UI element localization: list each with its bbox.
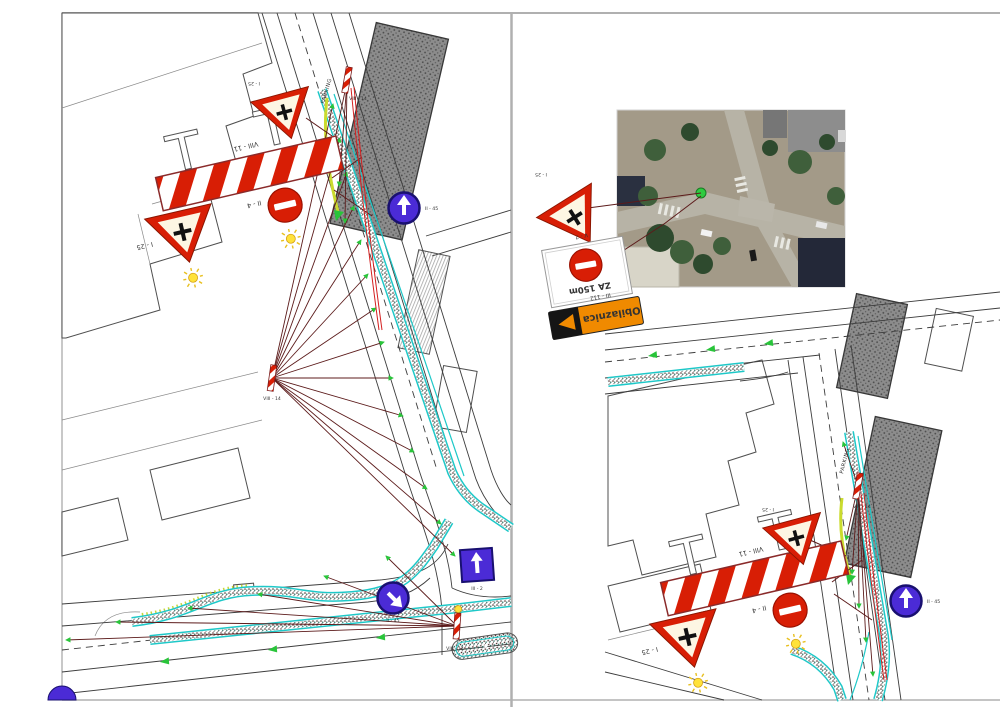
one-way-sign xyxy=(460,548,494,582)
traffic-plan-sheet: VIII - 11 I - 25 II - 4 I - 25 VIII - 14… xyxy=(0,0,1000,707)
delineator-code-label: VIII - 14 xyxy=(263,396,281,402)
delineator-code-label: VIII - 14 xyxy=(853,504,871,510)
no-entry-code-label: II - 4 xyxy=(246,199,262,210)
barrier-code-label: VIII - 11 xyxy=(738,545,764,558)
clipped-blue-sign xyxy=(48,686,76,700)
barrier-code-label: VIII - 11 xyxy=(233,140,259,153)
mandatory-code-label: II - 45 xyxy=(386,618,399,624)
delineator-post xyxy=(267,365,277,392)
one-way-code-label: III - 2 xyxy=(471,586,483,592)
warning-lamp-icon xyxy=(181,266,205,290)
triangle-code-label: I - 25 xyxy=(535,171,547,177)
warning-lamp-icon xyxy=(279,227,303,251)
aerial-photo-inset xyxy=(617,110,846,287)
lamp-dot-icon xyxy=(454,605,461,612)
mandatory-code-label: II - 45 xyxy=(927,599,940,605)
panel-left: VIII - 11 I - 25 II - 4 I - 25 VIII - 14… xyxy=(48,13,519,700)
mandatory-direction-icon xyxy=(389,193,420,224)
closure-board-sign: ZA 150m V - 7 xyxy=(540,225,633,307)
plan-canvas: VIII - 11 I - 25 II - 4 I - 25 VIII - 14… xyxy=(0,0,1000,707)
no-entry-icon xyxy=(265,185,306,226)
delineator-code-label: VIII - 14 xyxy=(446,646,464,652)
roadworks-triangle xyxy=(251,87,321,147)
triangle-code-label: I - 25 xyxy=(641,645,659,657)
no-entry-icon xyxy=(770,590,811,631)
top-triangle-code-label: I - 25 xyxy=(762,506,774,512)
mandatory-direction-icon xyxy=(891,586,922,617)
top-triangle-code-label: I - 25 xyxy=(248,80,260,86)
mandatory-code-label: II - 45 xyxy=(425,206,438,212)
no-entry-code-label: II - 4 xyxy=(751,604,767,615)
panel-right: I - 25 ZA 150m V - 7 Obilaznica III - 11… xyxy=(535,110,1000,703)
delineator-code-label: VIII - 14 xyxy=(349,96,367,102)
